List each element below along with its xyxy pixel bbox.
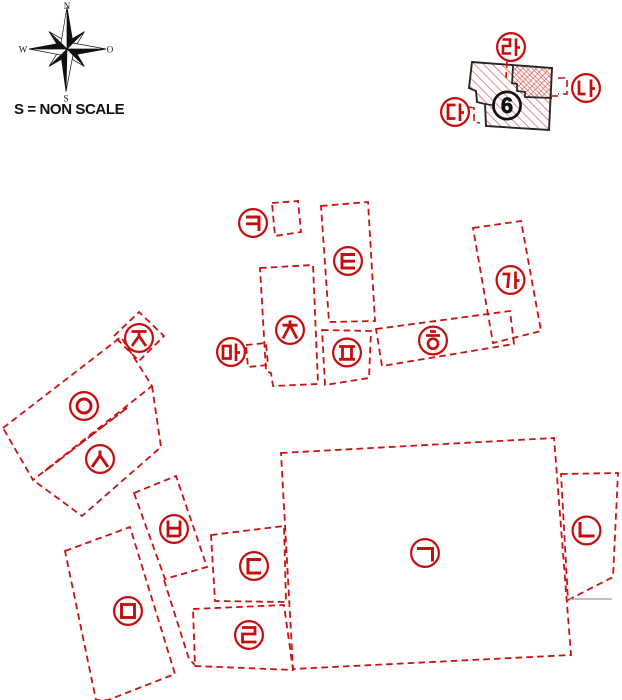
svg-text:6: 6 (501, 93, 513, 118)
svg-text:S = NON SCALE: S = NON SCALE (14, 101, 125, 118)
svg-text:W: W (19, 45, 28, 55)
svg-text:N: N (64, 1, 71, 11)
svg-text:O: O (107, 45, 114, 55)
